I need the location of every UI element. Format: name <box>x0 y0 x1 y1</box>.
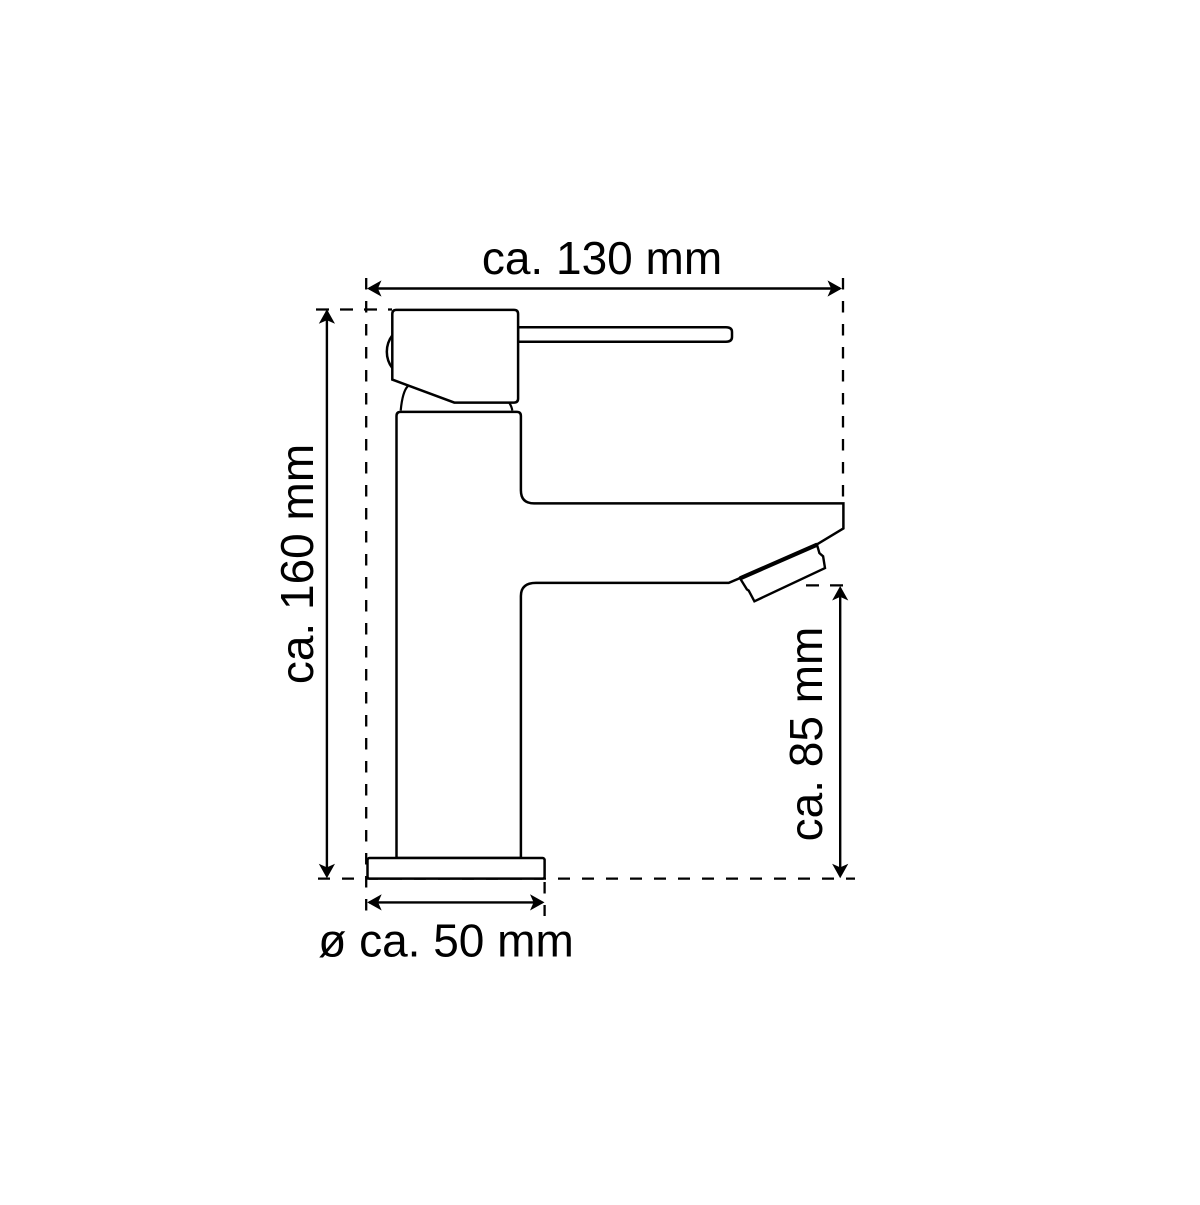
svg-text:ca. 130 mm: ca. 130 mm <box>482 232 722 284</box>
svg-text:ø ca. 50 mm: ø ca. 50 mm <box>318 915 574 967</box>
svg-text:ca. 85 mm: ca. 85 mm <box>780 627 832 842</box>
svg-text:ca. 160 mm: ca. 160 mm <box>271 444 323 684</box>
